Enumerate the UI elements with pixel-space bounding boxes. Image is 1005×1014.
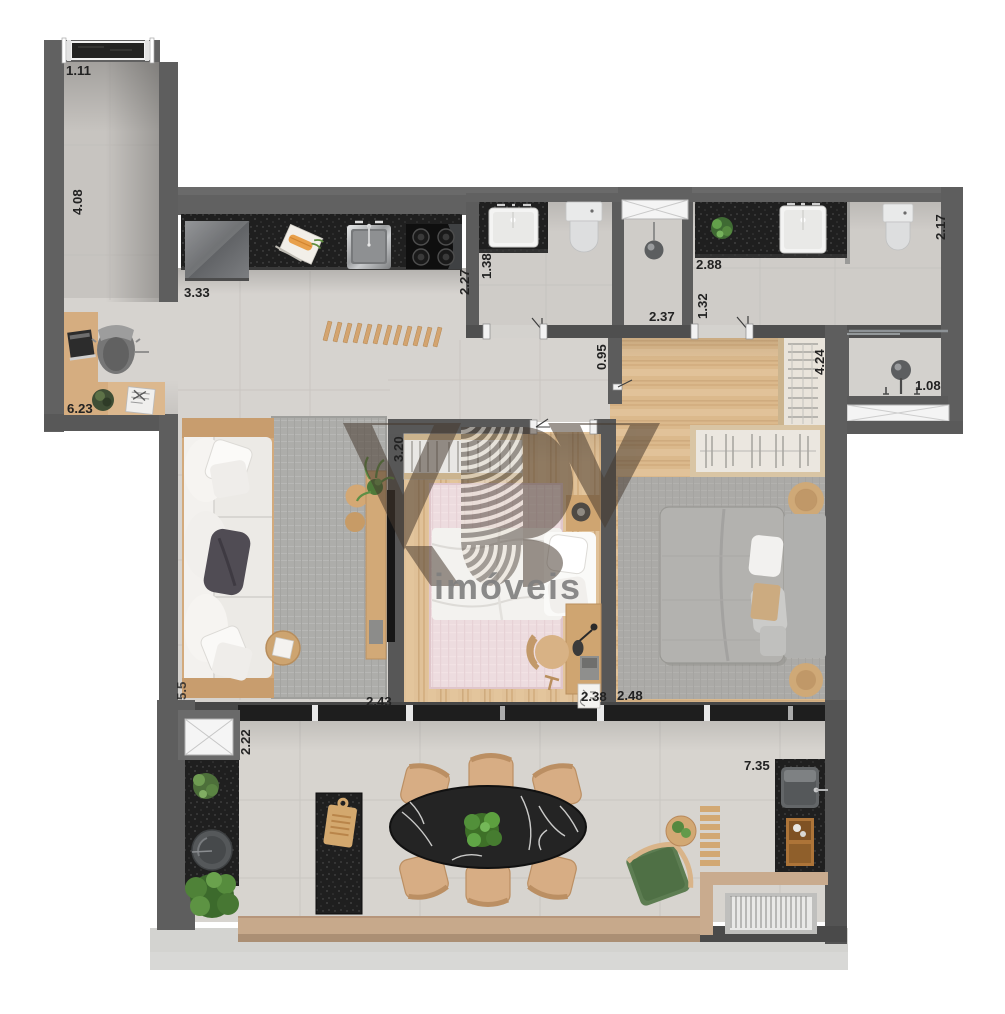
svg-text:2.22: 2.22	[238, 729, 253, 755]
svg-text:6.23: 6.23	[67, 401, 93, 416]
svg-text:2.37: 2.37	[649, 309, 675, 324]
svg-text:1.08: 1.08	[915, 378, 941, 393]
svg-text:2.27: 2.27	[457, 269, 472, 295]
svg-text:2.17: 2.17	[933, 214, 948, 240]
svg-text:4.24: 4.24	[812, 349, 827, 375]
svg-text:3.20: 3.20	[391, 436, 406, 462]
svg-text:4.08: 4.08	[70, 189, 85, 215]
svg-text:1.11: 1.11	[66, 63, 91, 78]
svg-text:imóveis: imóveis	[434, 566, 582, 607]
svg-text:2.88: 2.88	[696, 257, 722, 272]
svg-text:2.43: 2.43	[366, 694, 392, 709]
svg-text:3.33: 3.33	[184, 285, 210, 300]
svg-text:0.95: 0.95	[594, 344, 609, 370]
svg-text:2.48: 2.48	[617, 688, 643, 703]
svg-text:1.32: 1.32	[695, 293, 710, 319]
svg-text:5.5: 5.5	[174, 682, 189, 700]
svg-text:2.38: 2.38	[581, 689, 607, 704]
svg-text:1.38: 1.38	[479, 253, 494, 279]
svg-text:7.35: 7.35	[744, 758, 770, 773]
